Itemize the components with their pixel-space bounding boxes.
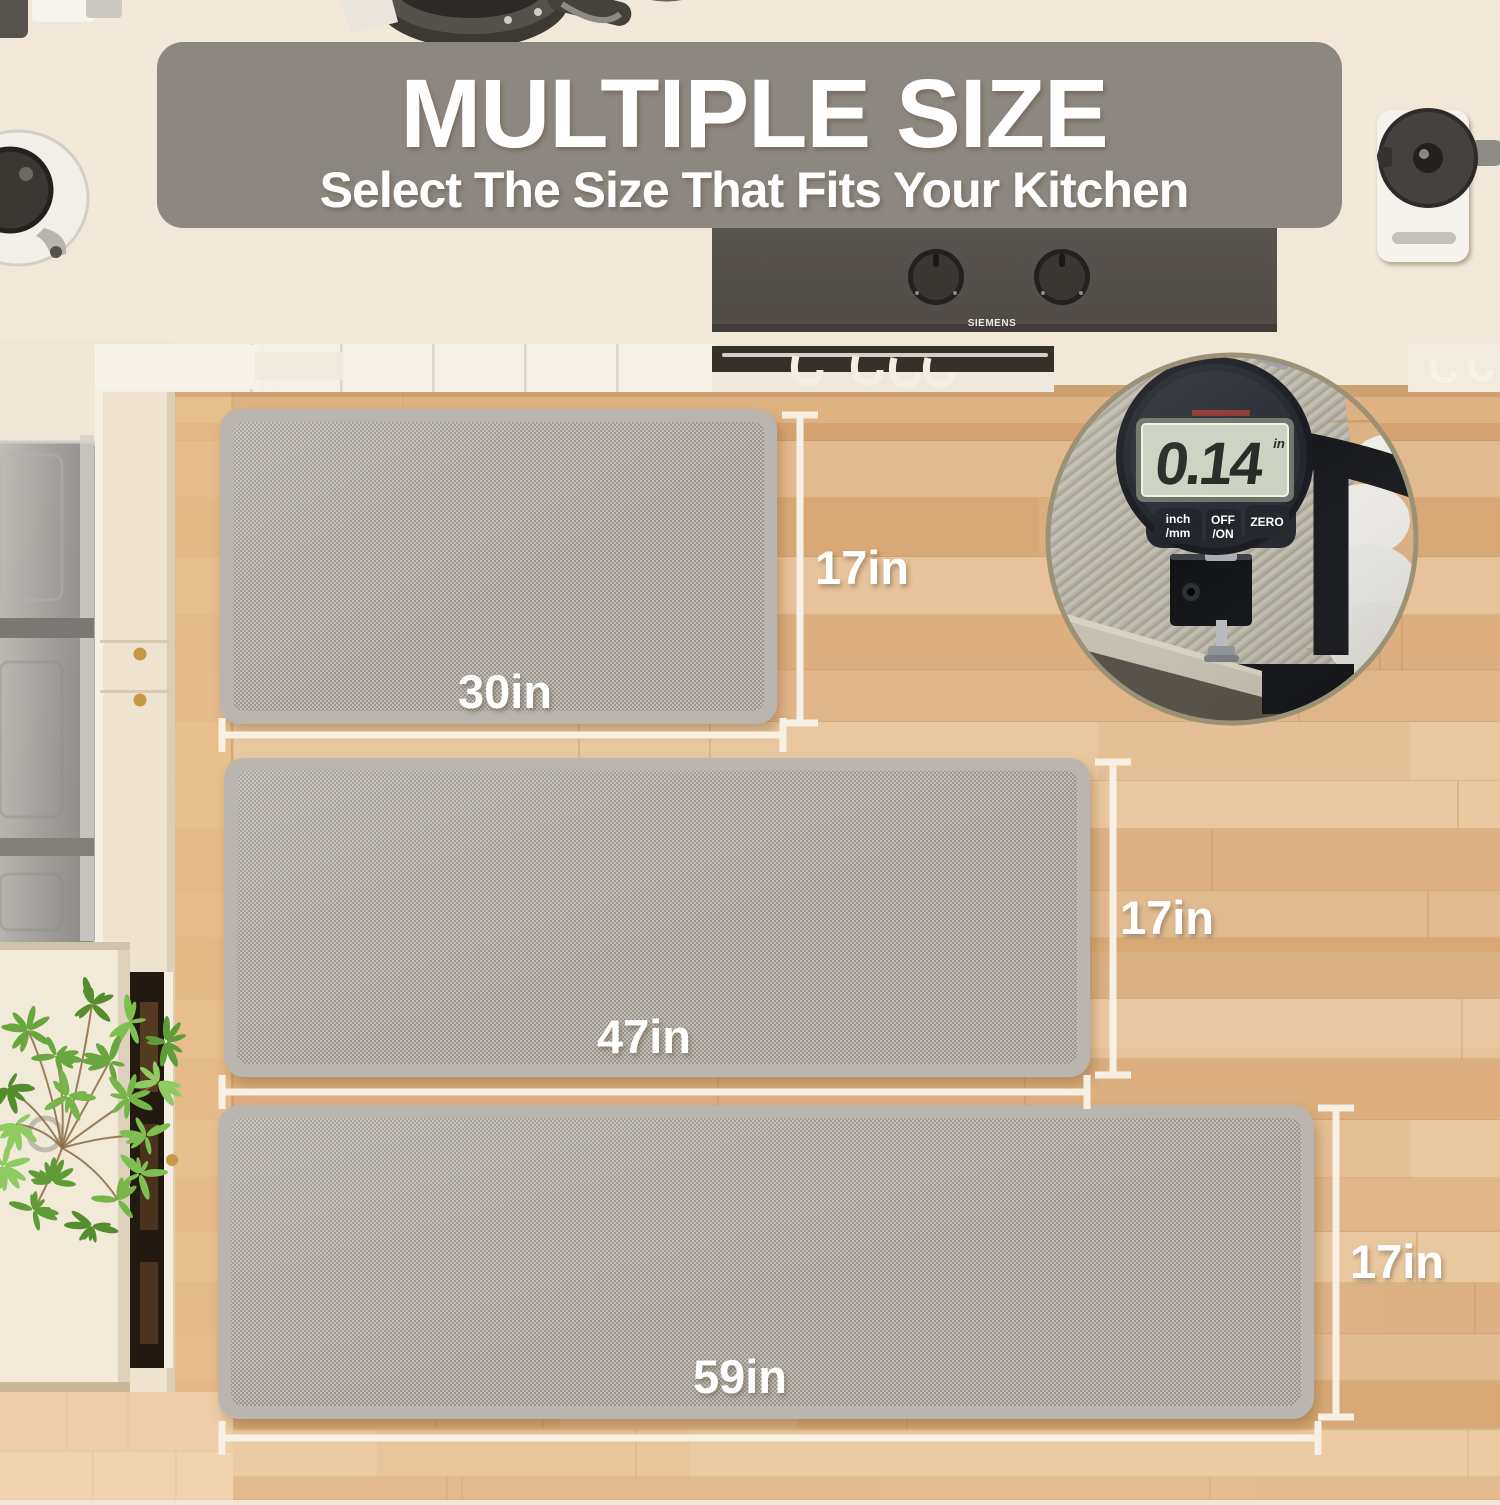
svg-text:SIEMENS: SIEMENS	[968, 318, 1017, 329]
svg-text:17in: 17in	[1120, 891, 1214, 944]
svg-text:47in: 47in	[597, 1010, 691, 1063]
svg-text:30in: 30in	[458, 665, 552, 718]
svg-text:59in: 59in	[693, 1350, 787, 1403]
svg-text:Select The Size That Fits Your: Select The Size That Fits Your Kitchen	[320, 162, 1189, 218]
svg-text:17in: 17in	[815, 541, 909, 594]
svg-text:17in: 17in	[1350, 1235, 1444, 1288]
svg-text:MULTIPLE SIZE: MULTIPLE SIZE	[400, 59, 1107, 168]
